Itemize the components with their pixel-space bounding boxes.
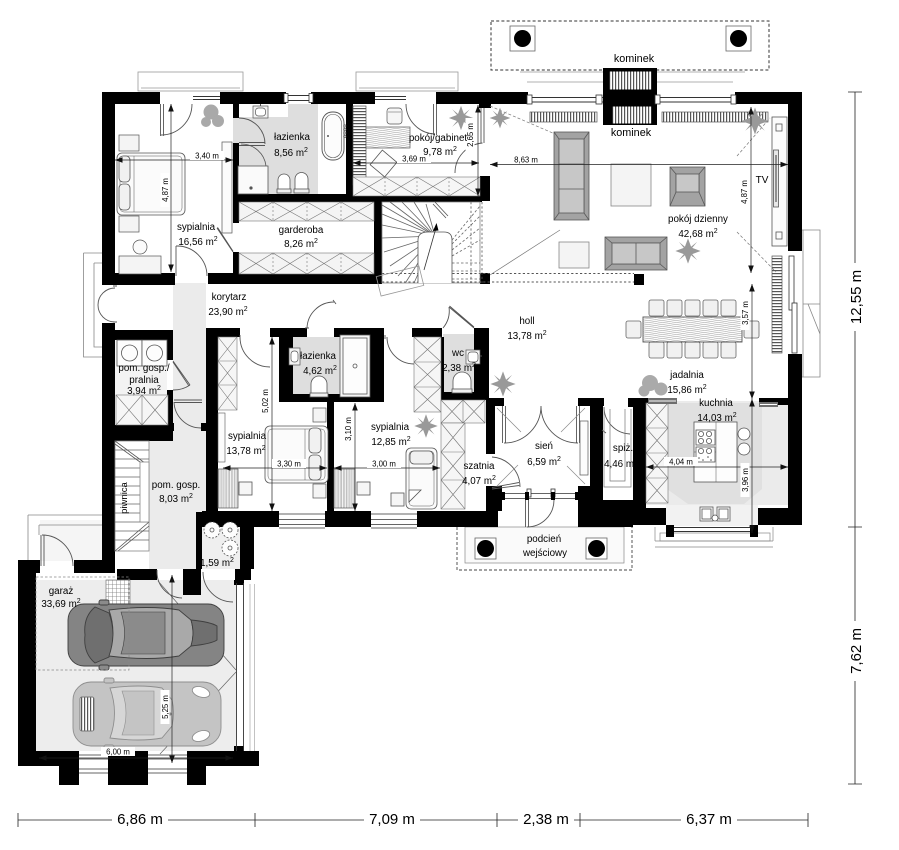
svg-text:garaż: garaż bbox=[49, 586, 74, 597]
svg-text:5,02 m: 5,02 m bbox=[261, 389, 270, 413]
svg-text:6,00 m: 6,00 m bbox=[106, 748, 130, 757]
svg-text:6,59 m2: 6,59 m2 bbox=[527, 456, 561, 468]
svg-text:wejściowy: wejściowy bbox=[522, 548, 567, 559]
svg-text:4,07 m2: 4,07 m2 bbox=[462, 475, 496, 487]
svg-text:podcień: podcień bbox=[527, 534, 561, 545]
svg-text:4,62 m2: 4,62 m2 bbox=[303, 365, 337, 377]
svg-text:4,46 m2: 4,46 m2 bbox=[604, 458, 638, 470]
svg-text:sień: sień bbox=[535, 441, 553, 452]
svg-text:wc: wc bbox=[451, 348, 464, 359]
svg-text:sypialnia: sypialnia bbox=[228, 431, 267, 442]
svg-text:kominek: kominek bbox=[611, 127, 652, 139]
svg-text:2,65 m: 2,65 m bbox=[466, 123, 475, 147]
svg-text:3,00 m: 3,00 m bbox=[372, 460, 396, 469]
svg-text:4,87 m: 4,87 m bbox=[161, 178, 170, 202]
svg-text:4,04 m: 4,04 m bbox=[669, 458, 693, 467]
svg-text:9,78 m2: 9,78 m2 bbox=[423, 146, 457, 158]
svg-text:pom. gosp./: pom. gosp./ bbox=[118, 363, 169, 374]
svg-text:7,62 m: 7,62 m bbox=[848, 628, 865, 674]
svg-text:7,09 m: 7,09 m bbox=[369, 811, 415, 828]
svg-text:33,69 m2: 33,69 m2 bbox=[41, 598, 80, 610]
svg-text:13,78 m2: 13,78 m2 bbox=[226, 445, 265, 457]
svg-text:3,94 m2: 3,94 m2 bbox=[127, 385, 161, 397]
svg-text:6,37 m: 6,37 m bbox=[686, 811, 732, 828]
svg-text:garderoba: garderoba bbox=[279, 225, 324, 236]
svg-text:łazienka: łazienka bbox=[300, 351, 336, 362]
svg-text:6,86 m: 6,86 m bbox=[117, 811, 163, 828]
svg-text:łazienka: łazienka bbox=[274, 132, 310, 143]
svg-text:3,10 m: 3,10 m bbox=[344, 417, 353, 441]
svg-text:3,57 m: 3,57 m bbox=[741, 301, 750, 325]
svg-text:korytarz: korytarz bbox=[212, 292, 247, 303]
svg-text:pokój dzienny: pokój dzienny bbox=[668, 214, 728, 225]
svg-text:3,30 m: 3,30 m bbox=[277, 460, 301, 469]
svg-text:12,55 m: 12,55 m bbox=[848, 270, 865, 324]
svg-text:8,56 m2: 8,56 m2 bbox=[274, 147, 308, 159]
svg-text:kuchnia: kuchnia bbox=[699, 398, 733, 409]
svg-text:TV: TV bbox=[756, 175, 769, 186]
svg-text:8,03 m2: 8,03 m2 bbox=[159, 493, 193, 505]
svg-text:8,26 m2: 8,26 m2 bbox=[284, 238, 318, 250]
svg-text:5,25 m: 5,25 m bbox=[161, 695, 170, 719]
svg-text:jadalnia: jadalnia bbox=[669, 370, 704, 381]
svg-text:pom. gosp.: pom. gosp. bbox=[152, 480, 200, 491]
svg-text:23,90 m2: 23,90 m2 bbox=[208, 306, 247, 318]
svg-text:8,63 m: 8,63 m bbox=[514, 156, 538, 165]
svg-text:16,56 m2: 16,56 m2 bbox=[178, 236, 217, 248]
svg-text:14,03 m2: 14,03 m2 bbox=[697, 412, 736, 424]
svg-text:42,68 m2: 42,68 m2 bbox=[678, 228, 717, 240]
svg-text:kominek: kominek bbox=[614, 53, 655, 65]
svg-text:2,38 m: 2,38 m bbox=[523, 811, 569, 828]
svg-text:3,96 m: 3,96 m bbox=[741, 468, 750, 492]
svg-text:12,85 m2: 12,85 m2 bbox=[371, 436, 410, 448]
svg-text:holl: holl bbox=[519, 316, 534, 327]
svg-text:15,86 m2: 15,86 m2 bbox=[667, 384, 706, 396]
svg-text:sypialnia: sypialnia bbox=[177, 222, 216, 233]
svg-text:pokój/gabinet: pokój/gabinet bbox=[409, 133, 468, 144]
svg-text:szatnia: szatnia bbox=[463, 461, 495, 472]
svg-text:sypialnia: sypialnia bbox=[371, 422, 410, 433]
svg-text:pralnia: pralnia bbox=[129, 375, 159, 386]
svg-text:spiż.: spiż. bbox=[613, 443, 633, 454]
svg-text:3,40 m: 3,40 m bbox=[195, 152, 219, 161]
svg-text:13,78 m2: 13,78 m2 bbox=[507, 330, 546, 342]
svg-text:4,87 m: 4,87 m bbox=[740, 180, 749, 204]
svg-text:2,38 m2: 2,38 m2 bbox=[442, 362, 476, 374]
svg-text:piwnica: piwnica bbox=[119, 481, 130, 513]
svg-text:1,59 m2: 1,59 m2 bbox=[200, 557, 234, 569]
